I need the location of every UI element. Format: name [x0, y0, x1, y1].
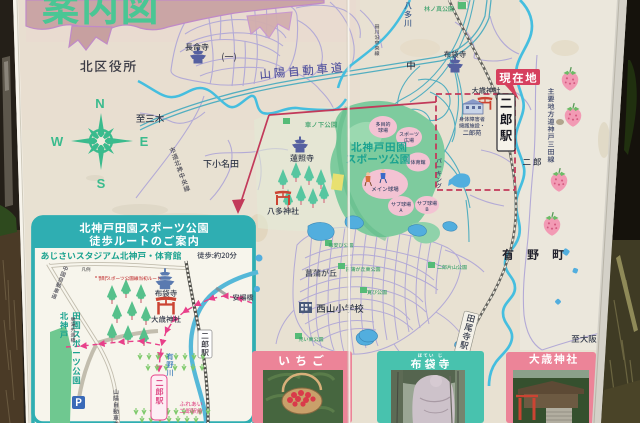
svg-text:S: S: [97, 176, 106, 191]
svg-text:E: E: [140, 134, 149, 149]
svg-text:W: W: [51, 134, 64, 149]
svg-text:N: N: [95, 96, 104, 111]
